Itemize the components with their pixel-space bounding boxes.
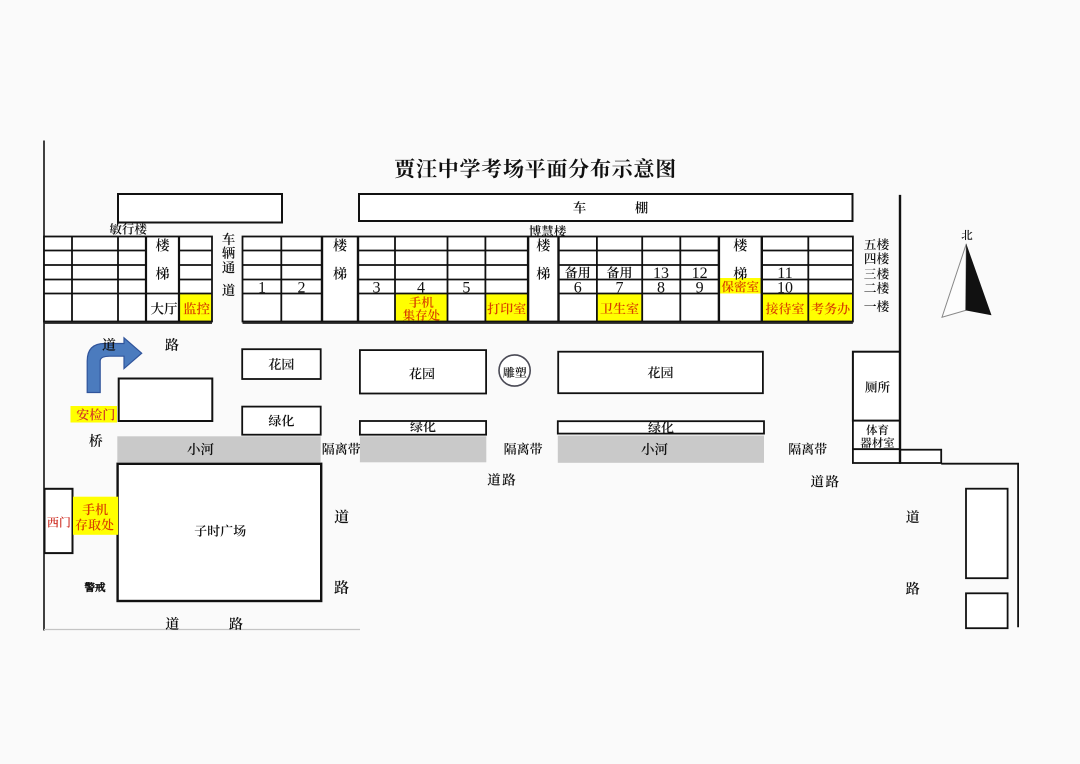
svg-text:12: 12 xyxy=(692,265,708,282)
svg-text:2: 2 xyxy=(298,279,306,296)
svg-text:7: 7 xyxy=(616,279,624,296)
svg-text:1: 1 xyxy=(258,279,266,296)
svg-text:5: 5 xyxy=(462,279,470,296)
svg-text:3: 3 xyxy=(373,279,381,296)
svg-text:6: 6 xyxy=(574,279,582,296)
svg-text:4: 4 xyxy=(417,279,425,296)
svg-text:13: 13 xyxy=(653,265,669,282)
svg-text:11: 11 xyxy=(777,265,792,282)
